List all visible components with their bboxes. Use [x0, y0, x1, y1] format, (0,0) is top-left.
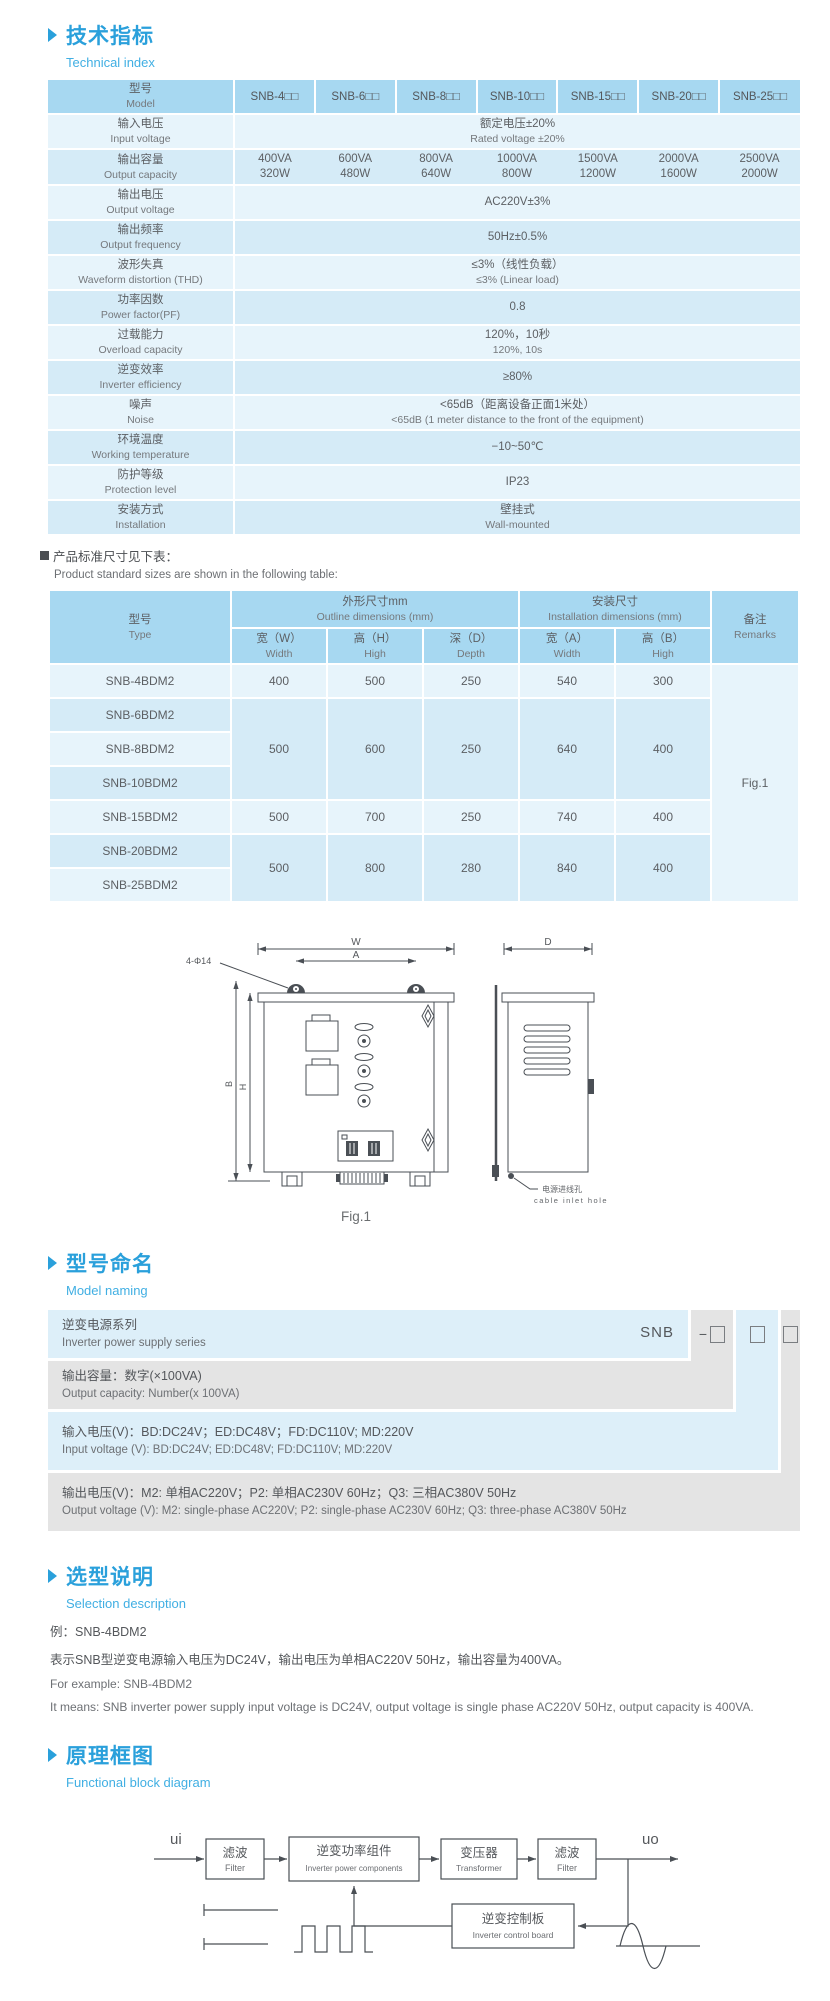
dim-type-cell: SNB-6BDM2	[49, 698, 231, 732]
dim-label-d: D	[544, 937, 551, 948]
spec-row-output-capacity: 输出容量Output capacity 400VA320W 600VA480W …	[48, 149, 800, 185]
spec-header-row: 型号 Model SNB-4□□ SNB-6□□ SNB-8□□ SNB-10□…	[48, 80, 800, 114]
spec-row-output-frequency: 输出频率Output frequency 50Hz±0.5%	[48, 220, 800, 255]
spec-value-cell: AC220V±3%	[234, 185, 800, 220]
dim-value-cell: 740	[519, 800, 615, 834]
section-bullet-icon	[48, 1748, 57, 1762]
spec-row-waveform-distortion: 波形失真Waveform distortion (THD) ≤3%（线性负载）≤…	[48, 255, 800, 290]
capacity-cell: 2500VA2000W	[719, 149, 800, 185]
naming-row-output-voltage: 输出电压(V)：M2: 单相AC220V；P2: 单相AC230V 60Hz；Q…	[48, 1473, 800, 1531]
model-column-header: SNB-25□□	[719, 80, 800, 114]
selection-description-text: 例：SNB-4BDM2 表示SNB型逆变电源输入电压为DC24V，输出电压为单相…	[50, 1621, 800, 1714]
mounting-holes-label: 4-Φ14	[186, 956, 211, 966]
technical-spec-table: 型号 Model SNB-4□□ SNB-6□□ SNB-8□□ SNB-10□…	[48, 80, 800, 534]
block-transformer-en: Transformer	[456, 1863, 502, 1873]
naming-row-input-voltage: 输入电压(V)：BD:DC24V；ED:DC48V；FD:DC110V; MD:…	[48, 1412, 778, 1470]
model-code-slot	[783, 1310, 798, 1358]
dim-type-cell: SNB-25BDM2	[49, 868, 231, 902]
dim-type-cell: SNB-15BDM2	[49, 800, 231, 834]
spec-header-model-label: 型号 Model	[48, 80, 234, 114]
dim-value-cell: 640	[519, 698, 615, 800]
dimension-table: 型号Type 外形尺寸mmOutline dimensions (mm) 安装尺…	[48, 589, 800, 903]
spec-label-cell: 过载能力Overload capacity	[48, 325, 234, 360]
model-code-box	[783, 1326, 798, 1343]
selection-example-en: For example: SNB-4BDM2	[50, 1677, 800, 1691]
section-title-cn: 技术指标	[66, 20, 154, 50]
dim-value-cell: 300	[615, 664, 711, 698]
dim-row: SNB-15BDM2 500 700 250 740 400	[49, 800, 799, 834]
dim-value-cell: 500	[231, 698, 327, 800]
dim-header-high: 高（H）High	[327, 628, 423, 664]
dim-header-depth: 深（D）Depth	[423, 628, 519, 664]
block-filter1-cn: 滤波	[222, 1846, 248, 1860]
functional-block-diagram: ui uo 滤波 Filter 逆变功率组件 Inverter power co…	[148, 1804, 800, 1977]
dim-type-cell: SNB-8BDM2	[49, 732, 231, 766]
dim-value-cell: 540	[519, 664, 615, 698]
section-selection-heading: 选型说明 Selection description	[48, 1561, 800, 1611]
spec-value-cell: IP23	[234, 465, 800, 500]
dim-type-cell: SNB-10BDM2	[49, 766, 231, 800]
spec-value-cell: 0.8	[234, 290, 800, 325]
block-filter2-en: Filter	[557, 1863, 577, 1873]
dim-value-cell: 500	[231, 834, 327, 902]
section-technical-heading: 技术指标 Technical index	[48, 20, 800, 70]
capacity-cell: 800VA640W	[396, 149, 477, 185]
spec-row-protection-level: 防护等级Protection level IP23	[48, 465, 800, 500]
outline-drawing-svg: W A D 4-Φ14 B H 电源进线孔 cable inlet hole F…	[178, 929, 648, 1227]
dim-header-install: 安装尺寸Installation dimensions (mm)	[519, 590, 711, 628]
model-naming-diagram: − 逆变电源系列 Inverter power supply series SN…	[48, 1310, 800, 1531]
spec-label-cell: 波形失真Waveform distortion (THD)	[48, 255, 234, 290]
spec-row-installation: 安装方式Installation 壁挂式Wall-mounted	[48, 500, 800, 534]
spec-value-cell: 额定电压±20%Rated voltage ±20%	[234, 114, 800, 149]
section-title-en: Selection description	[66, 1596, 800, 1611]
selection-example-cn: 例：SNB-4BDM2	[50, 1621, 800, 1640]
spec-value-cell: ≤3%（线性负载）≤3% (Linear load)	[234, 255, 800, 290]
spec-label-cell: 功率因数Power factor(PF)	[48, 290, 234, 325]
dim-header-install-high: 高（B）High	[615, 628, 711, 664]
spec-value-cell: 120%，10秒120%, 10s	[234, 325, 800, 360]
dim-value-cell: 500	[231, 800, 327, 834]
capacity-cell: 1500VA1200W	[557, 149, 638, 185]
dim-value-cell: 400	[615, 698, 711, 800]
model-dash: −	[699, 1326, 707, 1342]
selection-desc-cn: 表示SNB型逆变电源输入电压为DC24V，输出电压为单相AC220V 50Hz，…	[50, 1649, 800, 1668]
dim-value-cell: 800	[327, 834, 423, 902]
header-label-en: Model	[50, 97, 231, 111]
section-title-en: Technical index	[66, 55, 800, 70]
dim-value-cell: 840	[519, 834, 615, 902]
figure-caption: Fig.1	[341, 1209, 371, 1224]
dim-value-cell: 500	[327, 664, 423, 698]
section-naming-heading: 型号命名 Model naming	[48, 1248, 800, 1298]
block-power-cn: 逆变功率组件	[316, 1843, 391, 1858]
section-title-cn: 原理框图	[66, 1740, 154, 1770]
spec-row-input-voltage: 输入电压Input voltage 额定电压±20%Rated voltage …	[48, 114, 800, 149]
section-title-en: Functional block diagram	[66, 1775, 800, 1790]
spec-label-cell: 防护等级Protection level	[48, 465, 234, 500]
dim-value-cell: 400	[231, 664, 327, 698]
dim-value-cell: 400	[615, 800, 711, 834]
block-power-en: Inverter power components	[306, 1864, 403, 1873]
dim-header-install-width: 宽（A）Width	[519, 628, 615, 664]
section-title-row: 型号命名	[48, 1248, 800, 1278]
spec-value-cell: 壁挂式Wall-mounted	[234, 500, 800, 534]
model-code-box	[750, 1326, 765, 1343]
square-bullet-icon	[40, 551, 49, 560]
spec-label-cell: 逆变效率Inverter efficiency	[48, 360, 234, 395]
model-code-slot: −	[699, 1310, 725, 1358]
section-title-cn: 型号命名	[66, 1248, 154, 1278]
diagram-output-label: uo	[642, 1831, 659, 1848]
capacity-cell: 1000VA800W	[477, 149, 558, 185]
spec-row-noise: 噪声Noise <65dB（距离设备正面1米处）<65dB (1 meter d…	[48, 395, 800, 430]
model-column-header: SNB-10□□	[477, 80, 558, 114]
spec-label-cell: 输出电压Output voltage	[48, 185, 234, 220]
dim-value-cell: 600	[327, 698, 423, 800]
dim-header-type: 型号Type	[49, 590, 231, 664]
block-control-cn: 逆变控制板	[482, 1911, 545, 1926]
datasheet-page: 技术指标 Technical index 型号 Model SNB-4□□ SN…	[0, 0, 830, 2001]
model-code-slot	[750, 1310, 765, 1358]
model-column-header: SNB-6□□	[315, 80, 396, 114]
section-title-row: 原理框图	[48, 1740, 800, 1770]
dim-type-cell: SNB-20BDM2	[49, 834, 231, 868]
model-column-header: SNB-20□□	[638, 80, 719, 114]
spec-row-working-temperature: 环境温度Working temperature −10~50℃	[48, 430, 800, 465]
spec-label-cell: 噪声Noise	[48, 395, 234, 430]
dim-label-w: W	[351, 937, 361, 948]
spec-label-cell: 输出频率Output frequency	[48, 220, 234, 255]
note-line-en: Product standard sizes are shown in the …	[54, 569, 800, 581]
block-filter1-en: Filter	[225, 1863, 245, 1873]
spec-row-power-factor: 功率因数Power factor(PF) 0.8	[48, 290, 800, 325]
dim-value-cell: 400	[615, 834, 711, 902]
spec-row-output-voltage: 输出电压Output voltage AC220V±3%	[48, 185, 800, 220]
outline-drawing-figure: W A D 4-Φ14 B H 电源进线孔 cable inlet hole F…	[178, 929, 800, 1232]
standard-size-note: 产品标准尺寸见下表： Product standard sizes are sh…	[40, 546, 800, 581]
dim-value-cell: 280	[423, 834, 519, 902]
spec-row-overload-capacity: 过载能力Overload capacity 120%，10秒120%, 10s	[48, 325, 800, 360]
dim-value-cell: 700	[327, 800, 423, 834]
naming-row-series: 逆变电源系列 Inverter power supply series SNB	[48, 1310, 688, 1358]
capacity-cell: 2000VA1600W	[638, 149, 719, 185]
capacity-cell: 600VA480W	[315, 149, 396, 185]
spec-value-cell: −10~50℃	[234, 430, 800, 465]
spec-value-cell: ≥80%	[234, 360, 800, 395]
spec-value-cell: <65dB（距离设备正面1米处）<65dB (1 meter distance …	[234, 395, 800, 430]
dim-remark-cell: Fig.1	[711, 664, 799, 902]
diagram-input-label: ui	[170, 1831, 182, 1848]
model-column-header: SNB-4□□	[234, 80, 315, 114]
dim-row: SNB-4BDM2 400 500 250 540 300 Fig.1	[49, 664, 799, 698]
section-title-cn: 选型说明	[66, 1561, 154, 1591]
note-line-cn: 产品标准尺寸见下表：	[40, 546, 800, 565]
dim-header-remarks: 备注Remarks	[711, 590, 799, 664]
block-control-en: Inverter control board	[473, 1930, 554, 1940]
spec-label-cell: 输入电压Input voltage	[48, 114, 234, 149]
series-prefix: SNB	[640, 1324, 674, 1341]
section-bullet-icon	[48, 1256, 57, 1270]
dim-header-width: 宽（W）Width	[231, 628, 327, 664]
block-transformer-cn: 变压器	[460, 1845, 498, 1860]
dim-row: SNB-6BDM2 500 600 250 640 400	[49, 698, 799, 732]
spec-label-cell: 安装方式Installation	[48, 500, 234, 534]
cable-inlet-label-cn: 电源进线孔	[542, 1184, 582, 1194]
model-column-header: SNB-15□□	[557, 80, 638, 114]
model-column-header: SNB-8□□	[396, 80, 477, 114]
dim-type-cell: SNB-4BDM2	[49, 664, 231, 698]
dim-value-cell: 250	[423, 664, 519, 698]
spec-value-cell: 50Hz±0.5%	[234, 220, 800, 255]
header-label-cn: 型号	[50, 82, 231, 97]
section-bullet-icon	[48, 1569, 57, 1583]
dim-header-row-1: 型号Type 外形尺寸mmOutline dimensions (mm) 安装尺…	[49, 590, 799, 628]
section-diagram-heading: 原理框图 Functional block diagram	[48, 1740, 800, 1790]
naming-row-capacity: 输出容量：数字(×100VA) Output capacity: Number(…	[48, 1361, 733, 1409]
capacity-cell: 400VA320W	[234, 149, 315, 185]
block-diagram-svg: ui uo 滤波 Filter 逆变功率组件 Inverter power co…	[148, 1804, 708, 1972]
dim-label-h: H	[238, 1084, 248, 1091]
selection-desc-en: It means: SNB inverter power supply inpu…	[50, 1700, 800, 1714]
cable-inlet-label-en: cable inlet hole	[534, 1196, 608, 1205]
spec-label-cell: 输出容量Output capacity	[48, 149, 234, 185]
dim-value-cell: 250	[423, 698, 519, 800]
spec-row-inverter-efficiency: 逆变效率Inverter efficiency ≥80%	[48, 360, 800, 395]
section-bullet-icon	[48, 28, 57, 42]
dim-header-outline: 外形尺寸mmOutline dimensions (mm)	[231, 590, 519, 628]
block-filter2-cn: 滤波	[554, 1846, 580, 1860]
section-title-row: 选型说明	[48, 1561, 800, 1591]
section-title-en: Model naming	[66, 1283, 800, 1298]
dim-value-cell: 250	[423, 800, 519, 834]
spec-label-cell: 环境温度Working temperature	[48, 430, 234, 465]
dim-row: SNB-20BDM2 500 800 280 840 400	[49, 834, 799, 868]
section-title-row: 技术指标	[48, 20, 800, 50]
dim-label-b: B	[224, 1081, 234, 1087]
dim-label-a: A	[353, 950, 360, 961]
model-code-box	[710, 1326, 725, 1343]
